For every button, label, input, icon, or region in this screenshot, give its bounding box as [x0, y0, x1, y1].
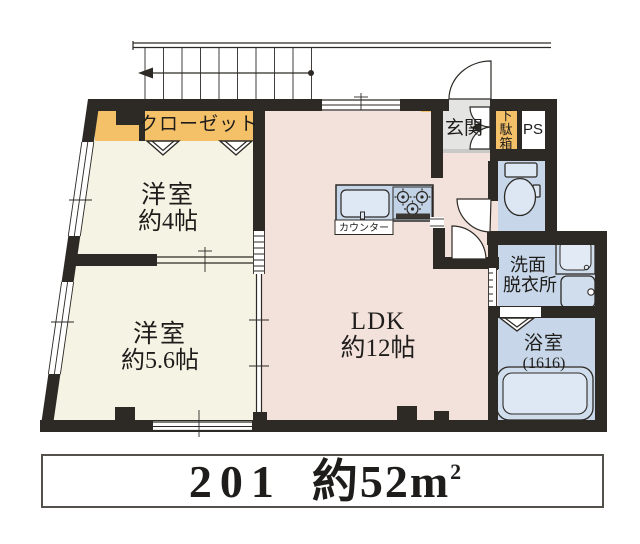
entrance-label: 玄関 — [445, 117, 483, 139]
kitchen-counter — [336, 185, 433, 224]
bathroom-size: (1616) — [523, 355, 566, 372]
counter-label: カウンター — [339, 222, 389, 234]
floor-plan-page: カウンター — [0, 0, 640, 544]
ldk-name: LDK — [351, 308, 405, 335]
unit-number: 201 — [189, 456, 282, 507]
floor-plan-drawing: カウンター — [0, 0, 640, 544]
door-frame-mark — [430, 217, 444, 228]
bedroom2-size: 約5.6帖 — [121, 347, 199, 374]
unit-caption: 201約52m2 — [42, 455, 603, 507]
svg-text:駄: 駄 — [499, 122, 512, 137]
bathtub-icon — [497, 367, 593, 420]
ldk-size: 約12帖 — [340, 334, 415, 362]
sliding-door-bedroom1 — [254, 231, 265, 274]
counter-label-box: カウンター — [335, 220, 393, 235]
stairs-arrow-icon — [138, 68, 153, 79]
window-top — [322, 93, 400, 111]
bedroom1-size: 約4帖 — [138, 208, 198, 235]
stove-icon — [393, 187, 432, 219]
svg-text:下: 下 — [499, 108, 512, 123]
closet-label: クローゼット — [139, 113, 259, 135]
unit-area: 約52m — [312, 456, 450, 507]
caption-text: 201約52m2 — [189, 456, 461, 507]
washroom-label-line2: 脱衣所 — [503, 275, 557, 295]
washroom-label-line1: 洗面 — [510, 255, 546, 275]
svg-text:箱: 箱 — [499, 136, 512, 151]
bedroom1-name: 洋室 — [141, 181, 195, 209]
bedroom2-name: 洋室 — [133, 320, 187, 348]
bathroom-name: 浴室 — [524, 332, 564, 354]
unit-area-sup: 2 — [450, 459, 461, 484]
ps-label: PS — [523, 121, 543, 138]
bath-door-opening — [500, 307, 541, 317]
entrance-door-icon — [449, 61, 491, 99]
sliding-door-washroom — [489, 268, 497, 308]
shoe-box-label: 下 駄 箱 — [499, 108, 512, 151]
washbasin-icon — [561, 276, 600, 308]
